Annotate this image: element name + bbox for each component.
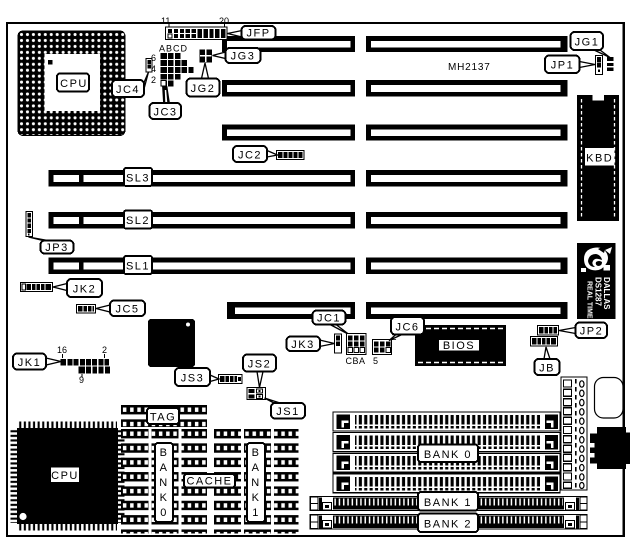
- svg-text:N: N: [251, 477, 260, 489]
- svg-text:JC4: JC4: [116, 84, 140, 96]
- svg-text:CPU: CPU: [51, 470, 79, 482]
- svg-text:2: 2: [102, 345, 107, 355]
- svg-text:0: 0: [160, 507, 168, 519]
- svg-text:JK3: JK3: [291, 339, 314, 351]
- svg-text:JP3: JP3: [45, 242, 68, 254]
- svg-text:JC5: JC5: [115, 304, 139, 316]
- svg-text:SL1: SL1: [126, 261, 150, 273]
- svg-text:CPU: CPU: [60, 78, 88, 90]
- svg-text:MH2137: MH2137: [448, 62, 491, 73]
- svg-text:DS1287: DS1287: [594, 277, 603, 306]
- svg-text:N: N: [159, 477, 168, 489]
- svg-text:B: B: [160, 447, 169, 459]
- svg-text:JP1: JP1: [551, 60, 574, 72]
- svg-text:BANK 1: BANK 1: [424, 497, 472, 509]
- svg-text:BANK 0: BANK 0: [424, 449, 472, 461]
- svg-text:JC3: JC3: [153, 107, 177, 119]
- svg-text:JG2: JG2: [191, 83, 216, 95]
- svg-text:JS1: JS1: [276, 406, 299, 418]
- svg-text:ABCD: ABCD: [159, 44, 188, 54]
- svg-text:B: B: [252, 447, 261, 459]
- svg-text:BANK 2: BANK 2: [424, 519, 472, 531]
- svg-text:5: 5: [373, 356, 378, 366]
- svg-text:K: K: [252, 492, 261, 504]
- svg-text:CBA: CBA: [346, 356, 366, 366]
- svg-text:CACHE: CACHE: [186, 476, 232, 488]
- svg-text:JC1: JC1: [317, 313, 341, 325]
- svg-text:REAL TIME: REAL TIME: [586, 281, 593, 319]
- svg-text:BIOS: BIOS: [443, 340, 475, 352]
- svg-text:16: 16: [57, 345, 67, 355]
- svg-text:SL3: SL3: [126, 173, 150, 185]
- svg-text:JS3: JS3: [181, 373, 204, 385]
- svg-text:JG1: JG1: [575, 37, 600, 49]
- svg-text:1: 1: [252, 507, 260, 519]
- svg-text:JFP: JFP: [246, 28, 270, 40]
- svg-text:K: K: [160, 492, 169, 504]
- svg-text:JC6: JC6: [395, 322, 419, 334]
- svg-text:JK1: JK1: [18, 357, 41, 369]
- svg-text:A: A: [252, 462, 261, 474]
- svg-text:SL2: SL2: [126, 215, 150, 227]
- svg-text:KBD: KBD: [586, 153, 613, 165]
- svg-text:JS2: JS2: [248, 359, 271, 371]
- svg-text:A: A: [160, 462, 169, 474]
- svg-text:2: 2: [151, 75, 156, 85]
- svg-text:JK2: JK2: [73, 284, 96, 296]
- svg-text:JB: JB: [539, 363, 555, 375]
- svg-text:JP2: JP2: [580, 326, 603, 338]
- svg-text:JG3: JG3: [231, 51, 256, 63]
- svg-text:JC2: JC2: [238, 150, 262, 162]
- svg-text:TAG: TAG: [150, 412, 176, 424]
